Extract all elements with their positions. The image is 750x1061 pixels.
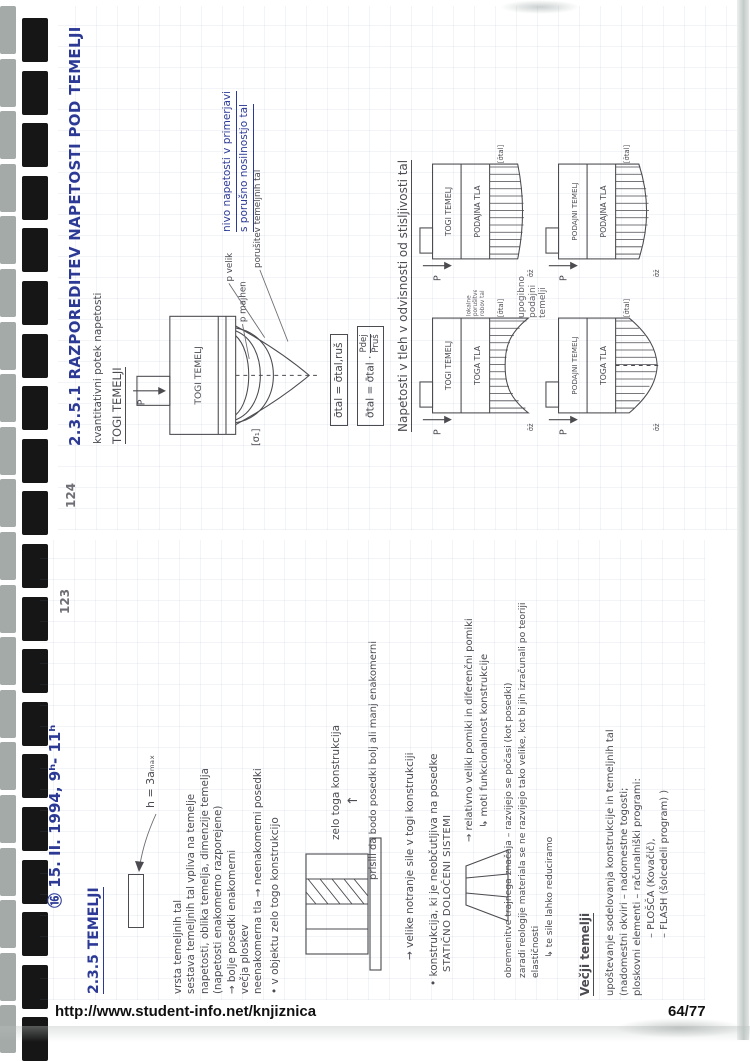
- scan-smudge: [615, 1018, 745, 1038]
- page-indicator: 64/77: [668, 1003, 706, 1020]
- svg-text:P: P: [558, 275, 569, 281]
- scanned-notebook-sheet: 124 2.3.5.1 RAZPOREDITEV NAPETOSTI POD T…: [0, 0, 750, 1061]
- prisili-note: prisili da bodo posedki bolj ali manj en…: [368, 641, 379, 880]
- binding-hole: [0, 637, 16, 685]
- notebook-page-number: 124: [64, 483, 78, 508]
- interaction-paragraph: upoštevanje sodelovanja konstrukcije in …: [604, 729, 672, 996]
- svg-text:TOGI TEMELJ: TOGI TEMELJ: [444, 341, 453, 391]
- arrow-up-icon: ↑: [346, 795, 361, 806]
- arrow-down-icon: [570, 262, 578, 270]
- label-p-majhen: p majhen: [238, 281, 248, 322]
- internal-forces-note: → velike notranje sile v togi konstrukci…: [404, 752, 416, 960]
- arrow-down-icon: [570, 416, 578, 424]
- binding-hole: [0, 374, 16, 422]
- binding-hole: [0, 427, 16, 475]
- svg-text:P: P: [432, 275, 443, 281]
- arrow-down-icon: [444, 416, 452, 424]
- binding-hole-shadow: [22, 439, 48, 483]
- scan-smudge: [500, 0, 580, 14]
- diagram-togi-podajna: P TOGI TEMELJ PODAJNA TLA [σ̄tal] σ̄z̄: [418, 136, 543, 286]
- svg-text:lokalne: lokalne: [466, 295, 472, 316]
- sigma-label: [σ₁]: [251, 428, 262, 446]
- binding-hole-shadow: [22, 123, 48, 167]
- scan-page-edge: [737, 0, 749, 1040]
- svg-text:[σ̄tal]: [σ̄tal]: [623, 144, 631, 163]
- svg-text:[σ̄tal]: [σ̄tal]: [497, 144, 505, 163]
- section-heading: 2.3.5 TEMELJI: [86, 887, 104, 994]
- binding-hole-shadow: [22, 334, 48, 378]
- lecture-date: ⑯ 15. II. 1994, 9ʰ- 11ʰ: [44, 725, 65, 908]
- svg-text:PODAJNA TLA: PODAJNA TLA: [599, 185, 608, 238]
- binding-hole-shadow: [22, 176, 48, 220]
- source-url: http://www.student-info.net/knjiznica: [55, 1003, 316, 1020]
- section-title: 2.3.5.1 RAZPOREDITEV NAPETOSTI POD TEMEL…: [66, 26, 84, 446]
- binding-hole: [0, 532, 16, 580]
- binding-hole: [0, 6, 16, 54]
- soil-paragraph: vrsta temeljnih tal sestava temeljnih ta…: [172, 768, 266, 994]
- bullet-insensitive-structure: • konstrukcija, ki je neobčutljiva na po…: [428, 754, 440, 987]
- binding-hole-shadow: [22, 491, 48, 535]
- h-note-arrow-icon: [132, 810, 164, 874]
- arrow-down-icon: [158, 387, 166, 395]
- blue-note: nivo napetosti v primerjavi s porušno no…: [220, 91, 254, 232]
- svg-text:PODAJNA TLA: PODAJNA TLA: [473, 185, 482, 238]
- statically-determinate-label: STATIČNO DOLOČENI SISTEMI: [442, 814, 453, 972]
- svg-text:PODAJNI TEMELJ: PODAJNI TEMELJ: [570, 336, 579, 395]
- binding-hole-shadow: [22, 281, 48, 325]
- binding-hole: [0, 322, 16, 370]
- footing-sketch: [128, 874, 144, 928]
- arrow-down-icon: [444, 262, 452, 270]
- svg-text:porušitve: porušitve: [472, 290, 479, 316]
- svg-text:P: P: [432, 429, 443, 435]
- diagram-podajni-toga: P PODAJNI TEMELJ TOGA TLA [σ̄tal] σ̄z̄: [544, 290, 669, 440]
- binding-hole: [0, 795, 16, 843]
- binding-hole: [0, 269, 16, 317]
- svg-text:[σ̄tal]: [σ̄tal]: [623, 298, 631, 317]
- section-subtitle: kvantitativni potek napetosti: [92, 293, 104, 444]
- svg-text:robov tal: robov tal: [480, 290, 486, 316]
- notebook-page-124: 124 2.3.5.1 RAZPOREDITEV NAPETOSTI POD T…: [58, 6, 748, 530]
- footing-label: TOGI TEMELJ: [193, 346, 204, 406]
- svg-text:PODAJNI TEMELJ: PODAJNI TEMELJ: [570, 182, 579, 241]
- binding-hole-shadow: [22, 18, 48, 62]
- binding-hole: [0, 953, 16, 1001]
- displacements-note: → relativno veliki pomiki in diferenčni …: [464, 618, 475, 842]
- loads-paragraph: obremenitve trajnega značaja – razvijejo…: [502, 603, 556, 978]
- binding-hole: [0, 742, 16, 790]
- notebook-page-number: 123: [58, 589, 72, 614]
- binding-hole: [0, 479, 16, 527]
- binding-hole: [0, 690, 16, 738]
- load-label: P: [137, 399, 148, 405]
- binding-hole-shadow: [22, 228, 48, 272]
- svg-text:TOGI TEMELJ: TOGI TEMELJ: [444, 187, 453, 237]
- heading-napetosti: Napetosti v tleh v odvisnosti od stislji…: [396, 160, 412, 432]
- binding-hole: [0, 848, 16, 896]
- svg-text:P: P: [558, 429, 569, 435]
- binding-hole: [0, 59, 16, 107]
- binding-hole: [0, 900, 16, 948]
- formula-ultimate-stress: σ̄tal = σ̄tal,ruš: [330, 335, 348, 427]
- svg-text:TOGA TLA: TOGA TLA: [473, 345, 482, 386]
- heading-vecji-temelji: Večji temelji: [578, 913, 594, 996]
- h-note: h = 3aₘₐₓ: [144, 755, 157, 808]
- svg-text:σ̄z̄: σ̄z̄: [653, 423, 661, 431]
- binding-hole: [0, 164, 16, 212]
- heading-togi-temelji: TOGI TEMELJI: [110, 367, 126, 444]
- binding-hole: [0, 111, 16, 159]
- binding-hole: [0, 216, 16, 264]
- binding-hole-shadow: [22, 386, 48, 430]
- binding-hole: [0, 585, 16, 633]
- svg-text:σ̄z̄: σ̄z̄: [527, 423, 535, 431]
- svg-text:σ̄z̄: σ̄z̄: [653, 269, 661, 277]
- svg-text:TOGA TLA: TOGA TLA: [599, 345, 608, 386]
- binding-hole-shadow: [22, 71, 48, 115]
- diagram-podajni-podajna: P PODAJNI TEMELJ PODAJNA TLA [σ̄tal] σ̄z…: [544, 136, 669, 286]
- label-p-velik: p velik: [225, 253, 235, 282]
- svg-text:[σ̄tal]: [σ̄tal]: [497, 298, 505, 317]
- stiff-structure-label: zelo toga konstrukcija: [330, 725, 342, 840]
- functionality-note: ↳ moti funkcionalnost konstrukcije: [479, 654, 490, 828]
- notebook-page-123: 123 ⑯ 15. II. 1994, 9ʰ- 11ʰ 2.3.5 TEMELJ…: [40, 540, 705, 1000]
- bullet-rigid-structure: • v objektu zelo togo konstrukcijo: [269, 817, 281, 994]
- formula-stress-ratio: σ̄tal = σ̄tal ·PdejPruš: [357, 326, 384, 426]
